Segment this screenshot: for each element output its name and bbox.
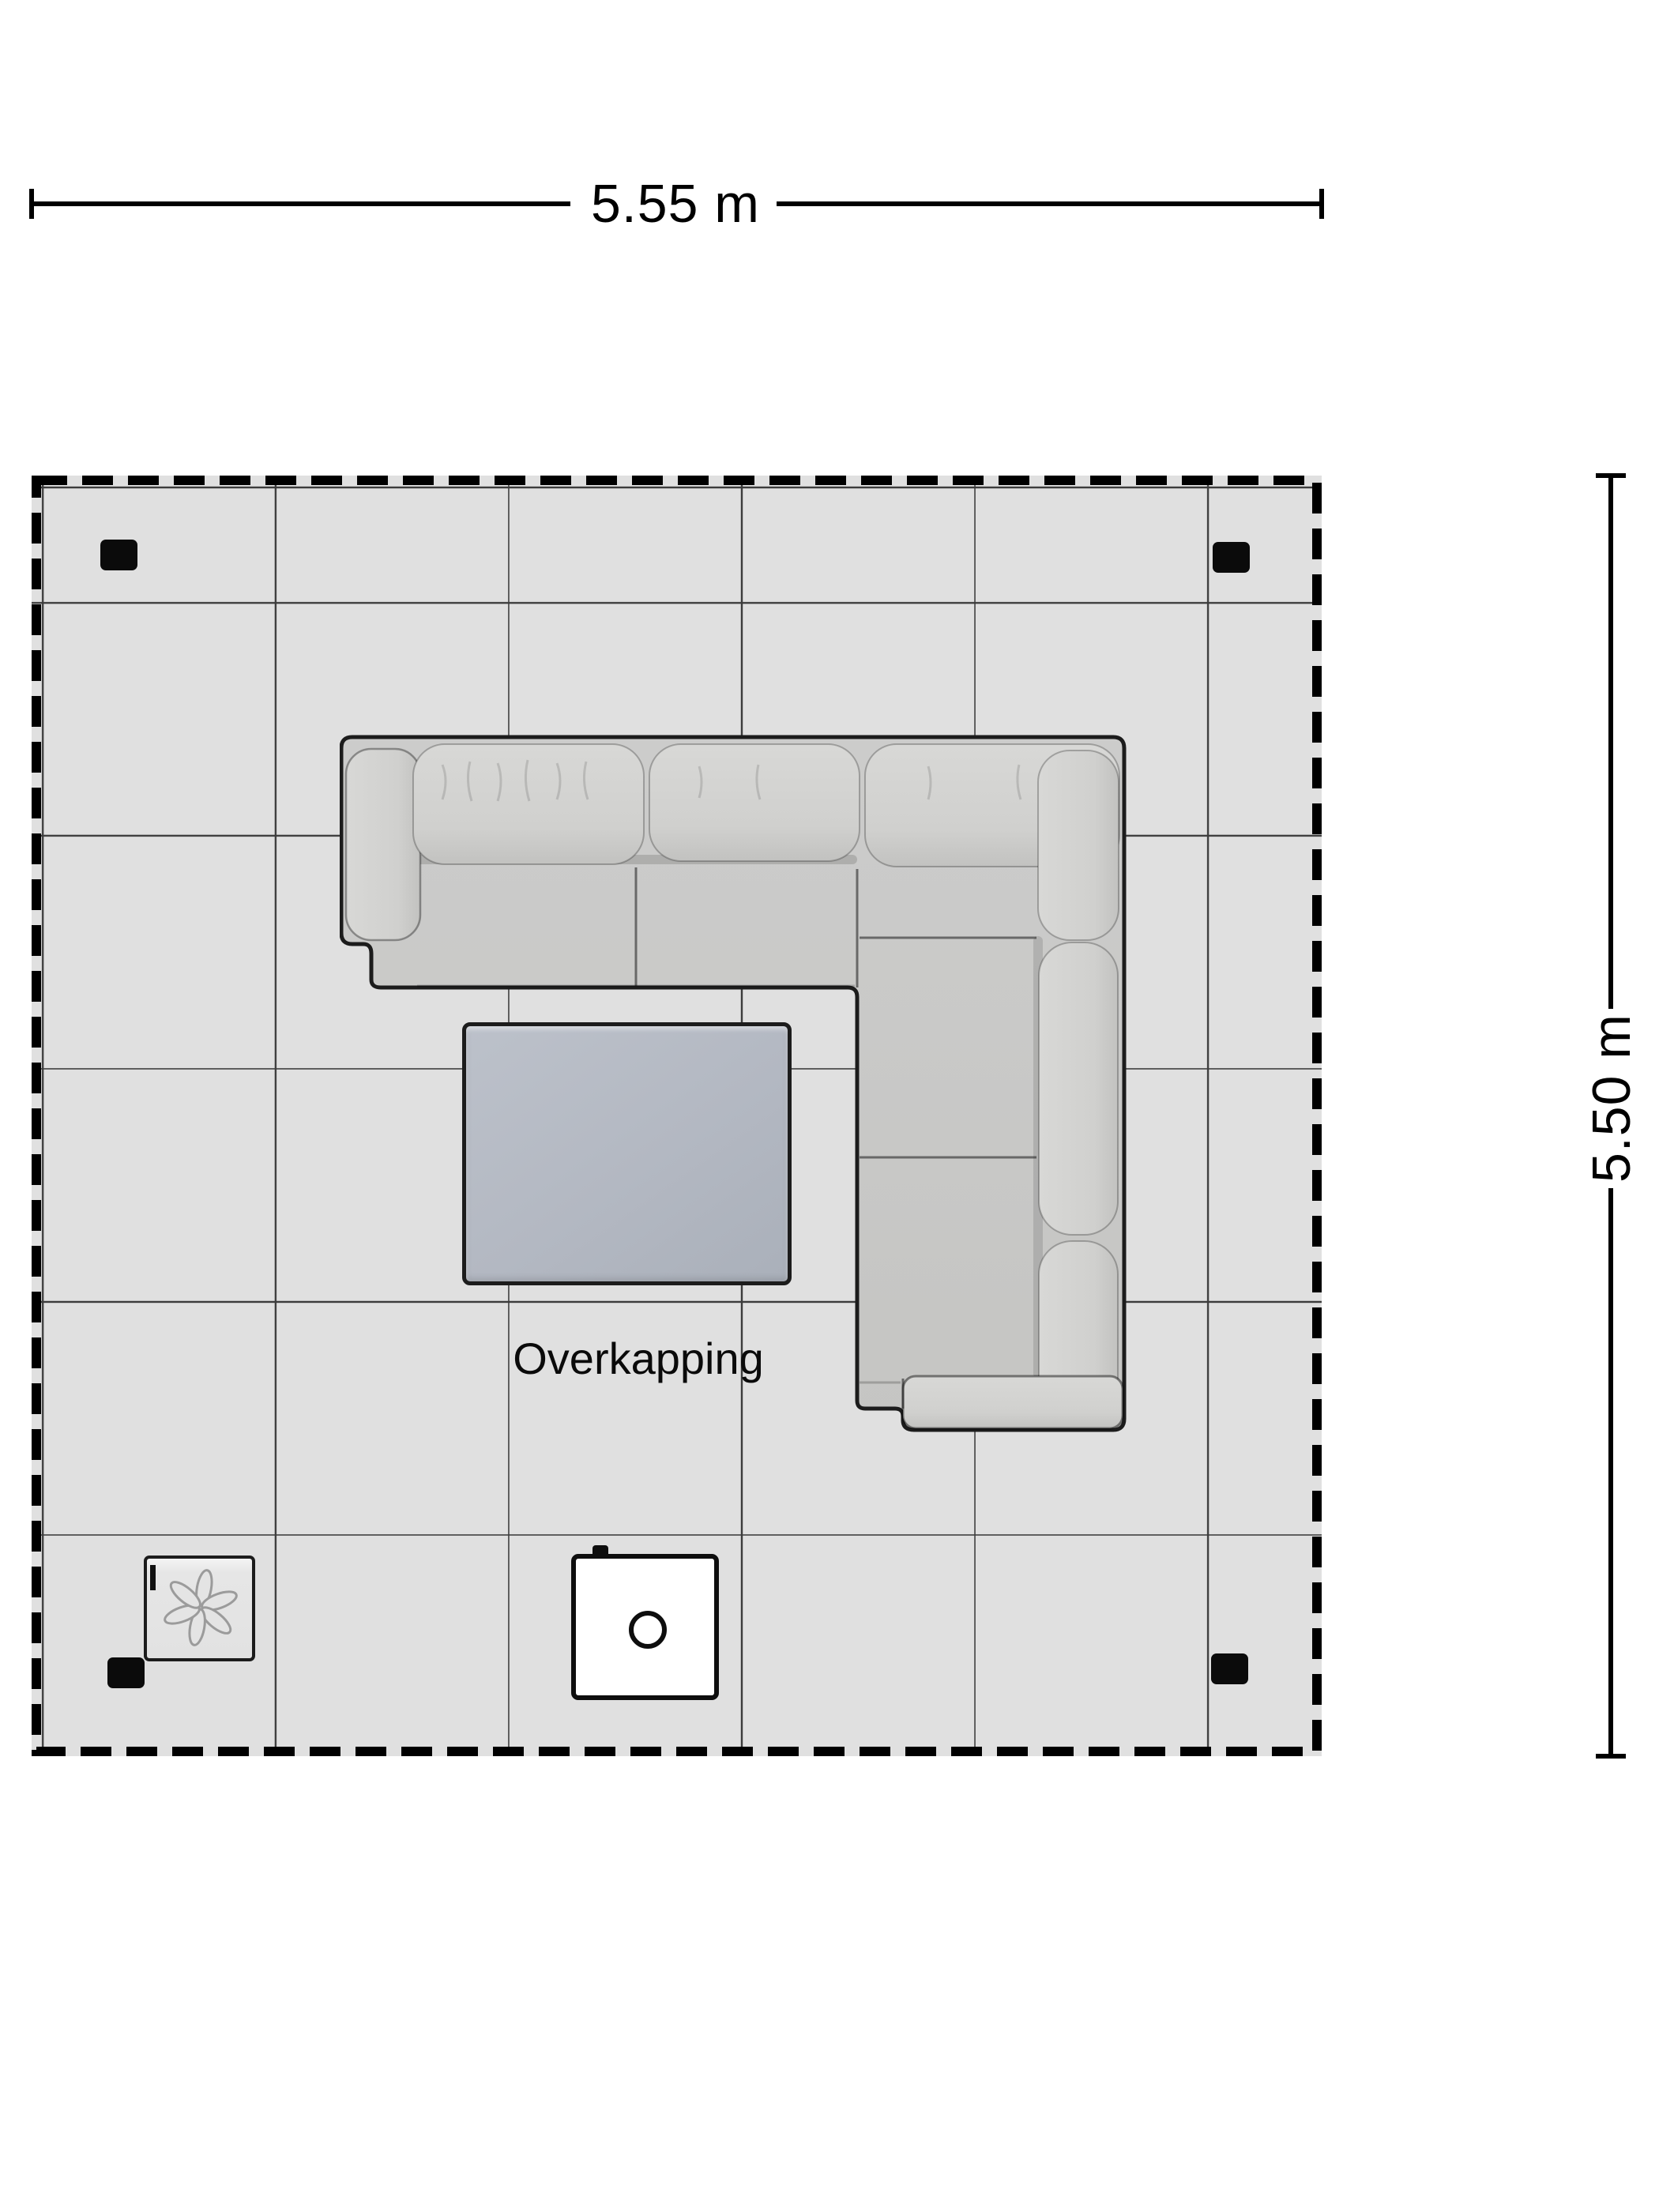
roof-post-bottom-left[interactable] [107, 1657, 145, 1688]
patio-heater[interactable] [144, 1556, 255, 1661]
heater-mark [150, 1565, 156, 1590]
fire-table[interactable] [571, 1554, 719, 1700]
dimension-top-label: 5.55 m [585, 175, 766, 232]
roof-post-top-right[interactable] [1213, 542, 1250, 573]
sofa-armrest-bottom [903, 1376, 1123, 1428]
dimension-top-tick-right [1319, 189, 1324, 219]
dimension-right-line-bottom [1608, 1188, 1613, 1756]
burner-circle-icon [629, 1611, 667, 1649]
dimension-top-tick-left [29, 189, 34, 219]
sofa-armrest-left [346, 749, 420, 940]
fan-icon [147, 1559, 252, 1658]
dimension-top-line-right [777, 201, 1322, 206]
roof-post-top-left[interactable] [100, 540, 137, 570]
dimension-top-line-left [32, 201, 570, 206]
roof-post-bottom-right[interactable] [1211, 1653, 1248, 1684]
floor-plan: 5.55 m 5.50 m [0, 0, 1659, 2212]
dimension-right-line-top [1608, 476, 1613, 1009]
dimension-right-tick-bottom [1596, 1754, 1626, 1759]
dimension-right-label: 5.50 m [1583, 1014, 1640, 1183]
dimension-right-tick-top [1596, 473, 1626, 478]
area-label: Overkapping [441, 1335, 836, 1382]
corner-sofa[interactable] [340, 735, 1127, 1433]
